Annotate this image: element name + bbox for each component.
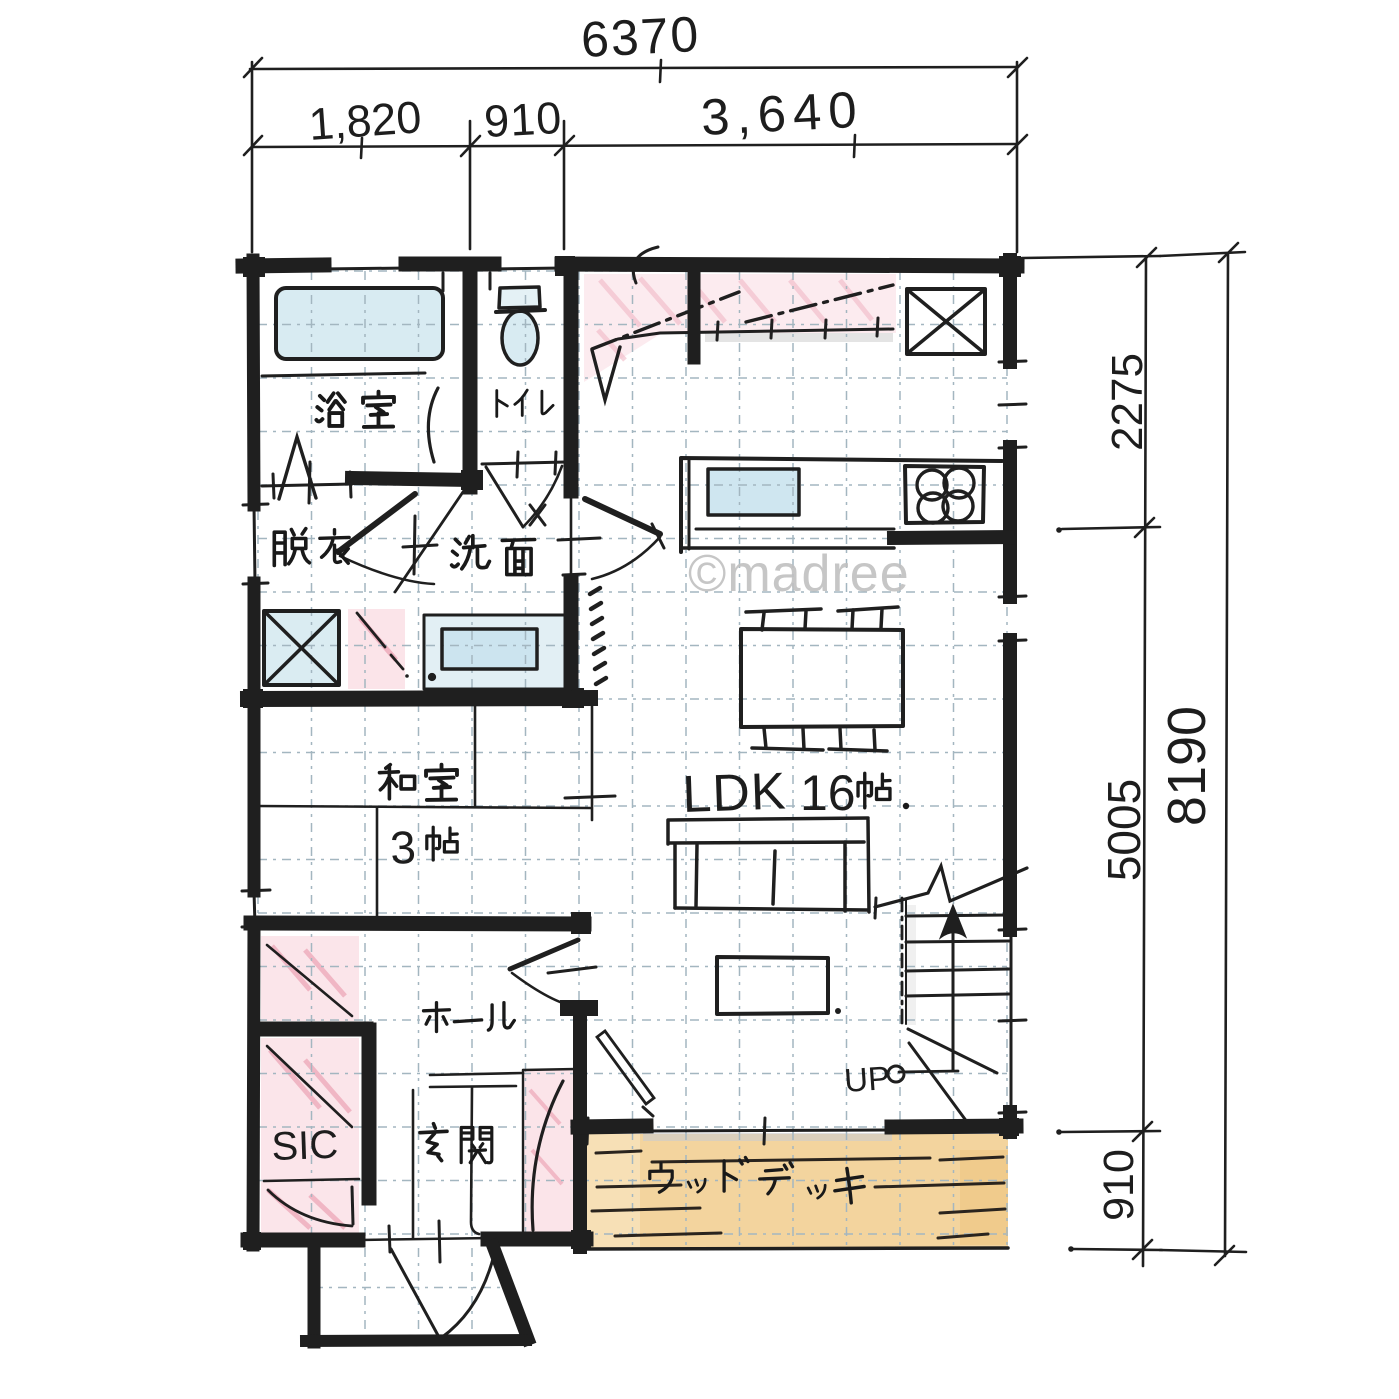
svg-text:UP: UP	[843, 1059, 891, 1099]
svg-text:LDK: LDK	[681, 762, 787, 824]
svg-text:3,640: 3,640	[700, 81, 865, 146]
svg-text:SIC: SIC	[271, 1123, 339, 1169]
svg-text:5005: 5005	[1098, 779, 1150, 881]
svg-text:910: 910	[483, 92, 564, 147]
svg-text:16: 16	[800, 765, 856, 821]
svg-text:910: 910	[1095, 1149, 1143, 1221]
svg-text:2275: 2275	[1103, 353, 1152, 451]
svg-text:©madree: ©madree	[688, 545, 910, 603]
svg-text:1,820: 1,820	[307, 91, 423, 150]
svg-text:6370: 6370	[580, 6, 702, 68]
svg-text:3: 3	[389, 821, 417, 874]
svg-text:8190: 8190	[1157, 706, 1217, 826]
